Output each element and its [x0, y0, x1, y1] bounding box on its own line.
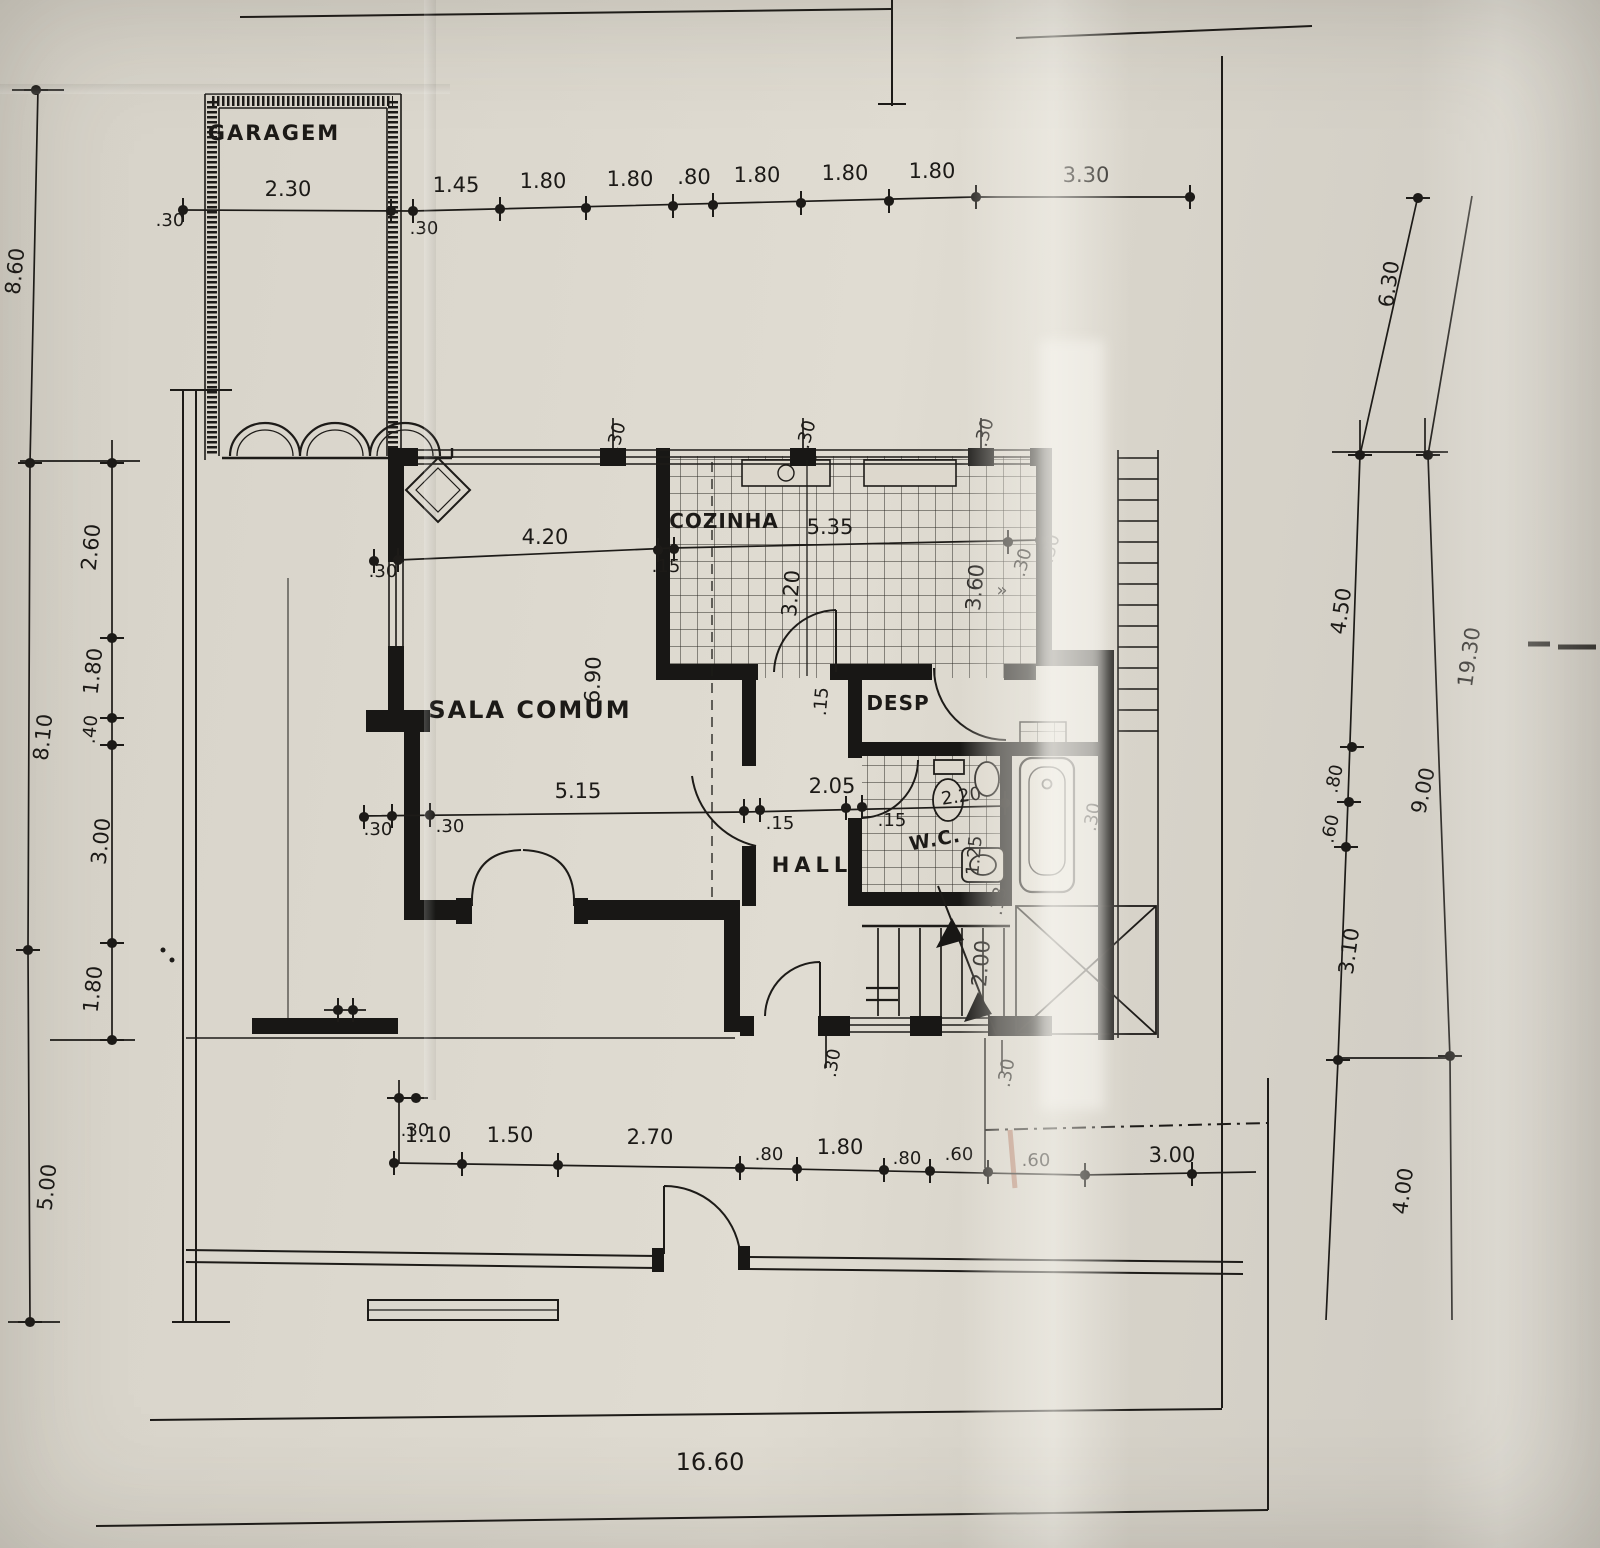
dim-label: 5.00: [33, 1163, 62, 1212]
dim-label: 1.80: [734, 163, 781, 187]
dim-label: .30: [820, 1047, 846, 1079]
dim-label: 8.60: [1, 247, 30, 296]
dim-label: 1.80: [607, 167, 654, 191]
room-label-hall: HALL: [772, 853, 853, 877]
dim-label: 4.00: [1388, 1166, 1418, 1216]
dim-label: 19.30: [1453, 626, 1485, 689]
dim-label: 5.35: [807, 515, 854, 539]
dim-label: 6.30: [1374, 259, 1404, 309]
dim-label: 3.00: [1149, 1143, 1196, 1167]
dim-label: 2.70: [627, 1125, 674, 1149]
dim-label: .15: [878, 810, 907, 831]
dim-label: 4.50: [1326, 586, 1356, 636]
dim-label: .80: [677, 165, 710, 189]
french-door: [472, 850, 574, 906]
dim-label: 3.10: [1334, 926, 1364, 976]
dim-label: 2.00: [967, 939, 995, 988]
dim-label: 1.80: [822, 161, 869, 185]
dim-label: 1.25: [962, 835, 986, 877]
dim-label: .15: [652, 556, 681, 577]
dim-label: .30: [971, 416, 999, 449]
dim-label: .30: [364, 819, 393, 840]
hall-door: [765, 962, 820, 1016]
dim-label: 5.15: [555, 779, 602, 803]
room-label-pantry: DESP: [866, 691, 929, 715]
dim-label: .40: [79, 714, 103, 745]
dim-label: .30: [410, 218, 439, 239]
terrace-lines: [186, 1246, 1243, 1320]
dim-label: .30: [603, 420, 631, 453]
stair-rail: [866, 988, 898, 1000]
porch-arches: [222, 423, 470, 522]
dim-label: .30: [369, 561, 398, 582]
garden-wall: [252, 1018, 398, 1034]
dim-label: 3.00: [87, 817, 116, 866]
room-label-kitchen: COZINHA: [669, 509, 779, 533]
dim-label: 3.30: [1063, 163, 1110, 187]
dim-label: .30: [156, 210, 185, 231]
dim-label: 1.80: [909, 159, 956, 183]
dim-label: 2.60: [77, 523, 106, 572]
dim-label: 1.80: [79, 965, 108, 1014]
entrance-gate: [664, 1186, 740, 1254]
dimension-labels: 2.30 1.45 1.80 1.80 .80 1.80 1.80 1.80 3…: [1, 159, 1485, 1476]
dim-label: 2.30: [265, 177, 312, 201]
dim-label: .30: [793, 418, 821, 451]
dimension-lines: [8, 86, 1472, 1326]
dim-label: 3.20: [777, 569, 805, 618]
bathtub: [1020, 758, 1074, 892]
dim-label: .80: [755, 1144, 784, 1165]
exterior-steps: [1118, 450, 1158, 1038]
dim-label: 2.05: [809, 774, 856, 798]
dim-label: .30: [401, 1120, 430, 1141]
dim-label: 3.60: [961, 563, 989, 612]
dim-label: .60: [1022, 1150, 1051, 1171]
dim-label: 1.80: [79, 647, 108, 696]
void-cross: [1016, 906, 1156, 1034]
dim-label: .15: [766, 813, 795, 834]
dim-label: 1.80: [520, 169, 567, 193]
pantry-door: [934, 668, 1006, 740]
dim-label: .80: [893, 1148, 922, 1169]
garage-walls: [205, 94, 401, 460]
dim-label-total: 16.60: [676, 1448, 745, 1476]
dim-label: .13: [986, 885, 1012, 917]
dim-label: 1.50: [487, 1123, 534, 1147]
dim-label: 4.20: [522, 525, 569, 549]
plot-boundary-lines: [96, 0, 1596, 1526]
dim-label: 1.45: [433, 173, 480, 197]
dim-label: .30: [436, 816, 465, 837]
window-chevron-symbol: »: [996, 580, 1007, 601]
dim-label: .30: [994, 1057, 1020, 1089]
dim-label: .60: [945, 1144, 974, 1165]
dim-label: 1.80: [817, 1135, 864, 1159]
toilet-tank: [934, 760, 964, 774]
dim-label: 6.90: [580, 656, 606, 704]
rust-stain: [1010, 1130, 1015, 1188]
dim-label: 8.10: [29, 713, 58, 762]
room-label-garage: GARAGEM: [208, 121, 340, 145]
floor-plan-drawing: GARAGEM SALA COMUM COZINHA HALL DESP W.C…: [0, 0, 1600, 1548]
dim-label: 9.00: [1407, 765, 1440, 816]
blueprint-photo: GARAGEM SALA COMUM COZINHA HALL DESP W.C…: [0, 0, 1600, 1548]
dim-label: .80: [1321, 763, 1347, 795]
dim-label: .60: [1317, 813, 1343, 845]
dim-label: .15: [810, 686, 833, 716]
